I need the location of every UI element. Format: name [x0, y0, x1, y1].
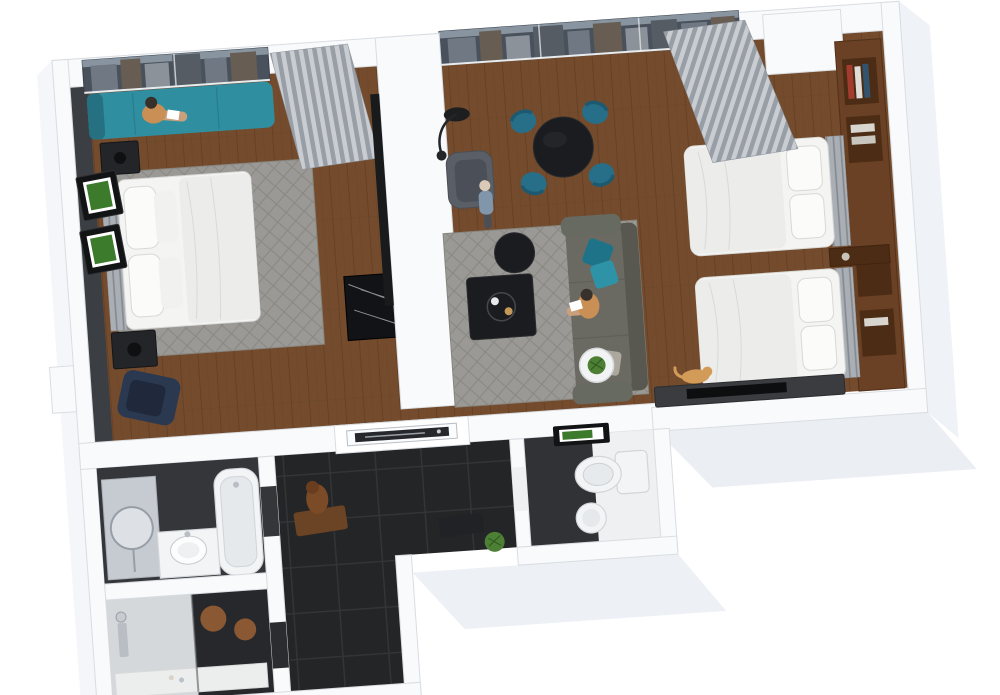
sofa-armrest: [560, 213, 621, 237]
left-wall-stub: [49, 366, 76, 414]
pillow: [123, 186, 159, 250]
sofa-armrest: [572, 381, 633, 405]
shower-door-opening: [270, 622, 289, 669]
pillow: [800, 325, 837, 371]
duvet: [179, 173, 261, 324]
shower-room: [106, 589, 275, 695]
book: [167, 110, 180, 121]
pillow: [153, 190, 179, 243]
bathtub: [213, 467, 264, 576]
pillow: [786, 145, 823, 191]
pillow: [789, 193, 826, 239]
shower-head: [116, 612, 127, 623]
apartment-plan: [28, 0, 990, 695]
wall-art-green-1: [76, 170, 124, 221]
wall-art-green-2: [79, 224, 127, 275]
floor-plan-svg: [0, 0, 1000, 695]
bench-armrest: [86, 93, 105, 140]
pillow: [797, 277, 834, 323]
pillow: [158, 256, 184, 309]
green-wall-art: [553, 423, 610, 447]
bed-lower: [695, 267, 860, 388]
square-coffee-table: [466, 274, 536, 340]
bathroom: [97, 457, 267, 584]
toilet-room: [521, 420, 661, 547]
white-wardrobe: [763, 9, 845, 74]
floor-plan-render: [0, 0, 1000, 695]
nightstand-shelf: [829, 245, 890, 267]
king-bed: [101, 171, 261, 331]
